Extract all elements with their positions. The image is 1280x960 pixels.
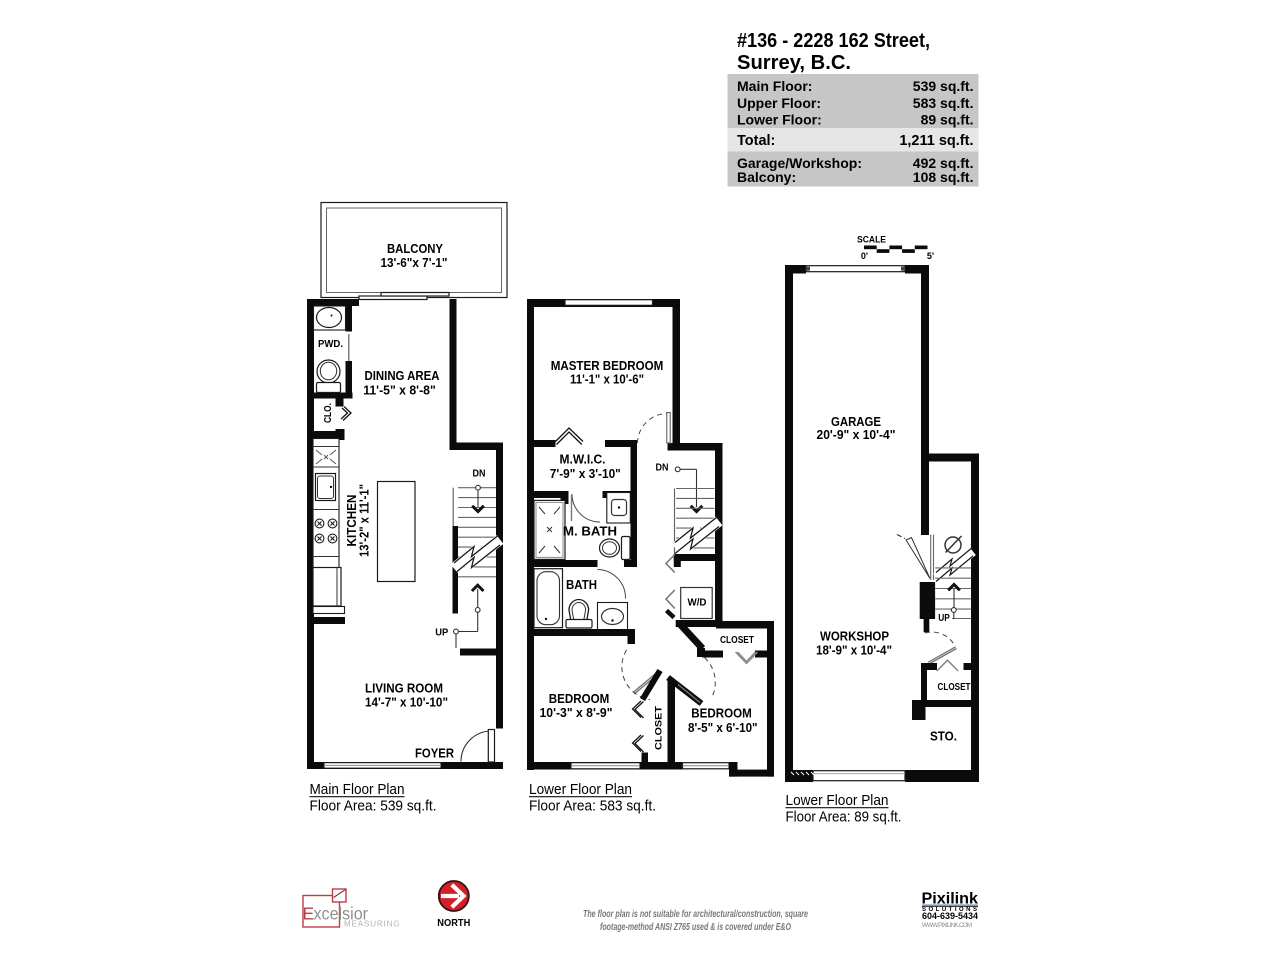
svg-text:DN: DN [473,469,486,480]
svg-text:Lower Floor Plan: Lower Floor Plan [529,782,632,798]
svg-text:89 sq.ft.: 89 sq.ft. [921,112,974,128]
svg-text:MEASURING: MEASURING [344,920,400,929]
svg-text:Main Floor:: Main Floor: [737,78,812,94]
svg-text:WORKSHOP: WORKSHOP [820,629,889,644]
svg-text:10'-3" x 8'-9": 10'-3" x 8'-9" [540,705,613,720]
svg-text:M. BATH: M. BATH [563,524,617,539]
svg-text:0': 0' [861,251,868,261]
svg-text:SCALE: SCALE [857,235,886,246]
svg-text:WWW.PIXILINK.COM: WWW.PIXILINK.COM [922,922,972,929]
svg-text:604-639-5434: 604-639-5434 [922,911,978,921]
svg-text:Floor Area: 583 sq.ft.: Floor Area: 583 sq.ft. [529,799,656,815]
svg-text:13'-6"x 7'-1": 13'-6"x 7'-1" [381,255,448,270]
svg-text:E: E [303,904,315,924]
svg-text:STO.: STO. [930,729,957,744]
svg-text:Total:: Total: [737,133,775,149]
svg-text:BEDROOM: BEDROOM [691,706,752,721]
svg-text:The floor plan is not suitable: The floor plan is not suitable for archi… [583,909,808,920]
svg-text:PWD.: PWD. [318,338,343,350]
svg-text:539 sq.ft.: 539 sq.ft. [913,78,974,94]
svg-text:BATH: BATH [566,577,597,592]
svg-text:1,211 sq.ft.: 1,211 sq.ft. [899,133,973,149]
svg-text:5': 5' [927,251,934,261]
svg-text:UP: UP [435,627,448,638]
svg-text:BALCONY: BALCONY [387,241,443,256]
svg-text:NORTH: NORTH [437,917,470,929]
svg-text:8'-5" x 6'-10": 8'-5" x 6'-10" [688,720,758,735]
svg-text:CLOSET: CLOSET [654,705,664,750]
svg-text:13'-2" x 11'-1": 13'-2" x 11'-1" [356,484,371,557]
svg-text:DN: DN [656,463,669,474]
svg-text:7'-9" x 3'-10": 7'-9" x 3'-10" [550,466,621,481]
svg-text:W/D: W/D [688,597,707,609]
svg-text:Surrey, B.C.: Surrey, B.C. [737,51,851,74]
svg-text:Lower Floor Plan: Lower Floor Plan [786,793,889,809]
svg-text:Floor Area: 539 sq.ft.: Floor Area: 539 sq.ft. [310,799,437,815]
svg-text:18'-9" x 10'-4": 18'-9" x 10'-4" [816,643,892,658]
svg-text:M.W.I.C.: M.W.I.C. [560,452,606,467]
svg-text:Main Floor Plan: Main Floor Plan [310,782,405,798]
svg-text:20'-9" x 10'-4": 20'-9" x 10'-4" [817,427,896,442]
svg-text:14'-7" x 10'-10": 14'-7" x 10'-10" [365,695,448,710]
svg-text:Upper Floor:: Upper Floor: [737,95,821,111]
svg-text:CLO.: CLO. [323,403,334,423]
svg-text:footage-method ANSI Z765 used: footage-method ANSI Z765 used & is cover… [600,922,791,933]
svg-text:CLOSET: CLOSET [720,635,754,646]
svg-text:#136 - 2228 162 Street,: #136 - 2228 162 Street, [737,29,930,52]
svg-text:FOYER: FOYER [415,746,455,761]
svg-text:DINING AREA: DINING AREA [365,368,440,383]
svg-text:108 sq.ft.: 108 sq.ft. [913,169,974,185]
svg-text:Lower Floor:: Lower Floor: [737,112,822,128]
svg-text:UP: UP [938,613,950,624]
svg-text:Balcony:: Balcony: [737,169,796,185]
svg-text:11'-1" x 10'-6": 11'-1" x 10'-6" [570,372,644,387]
svg-text:LIVING ROOM: LIVING ROOM [365,681,443,696]
svg-text:583 sq.ft.: 583 sq.ft. [913,95,974,111]
svg-text:BEDROOM: BEDROOM [549,691,610,706]
svg-text:Floor Area: 89 sq.ft.: Floor Area: 89 sq.ft. [786,810,902,826]
svg-text:11'-5" x 8'-8": 11'-5" x 8'-8" [363,383,436,398]
svg-text:CLOSET: CLOSET [938,682,971,693]
